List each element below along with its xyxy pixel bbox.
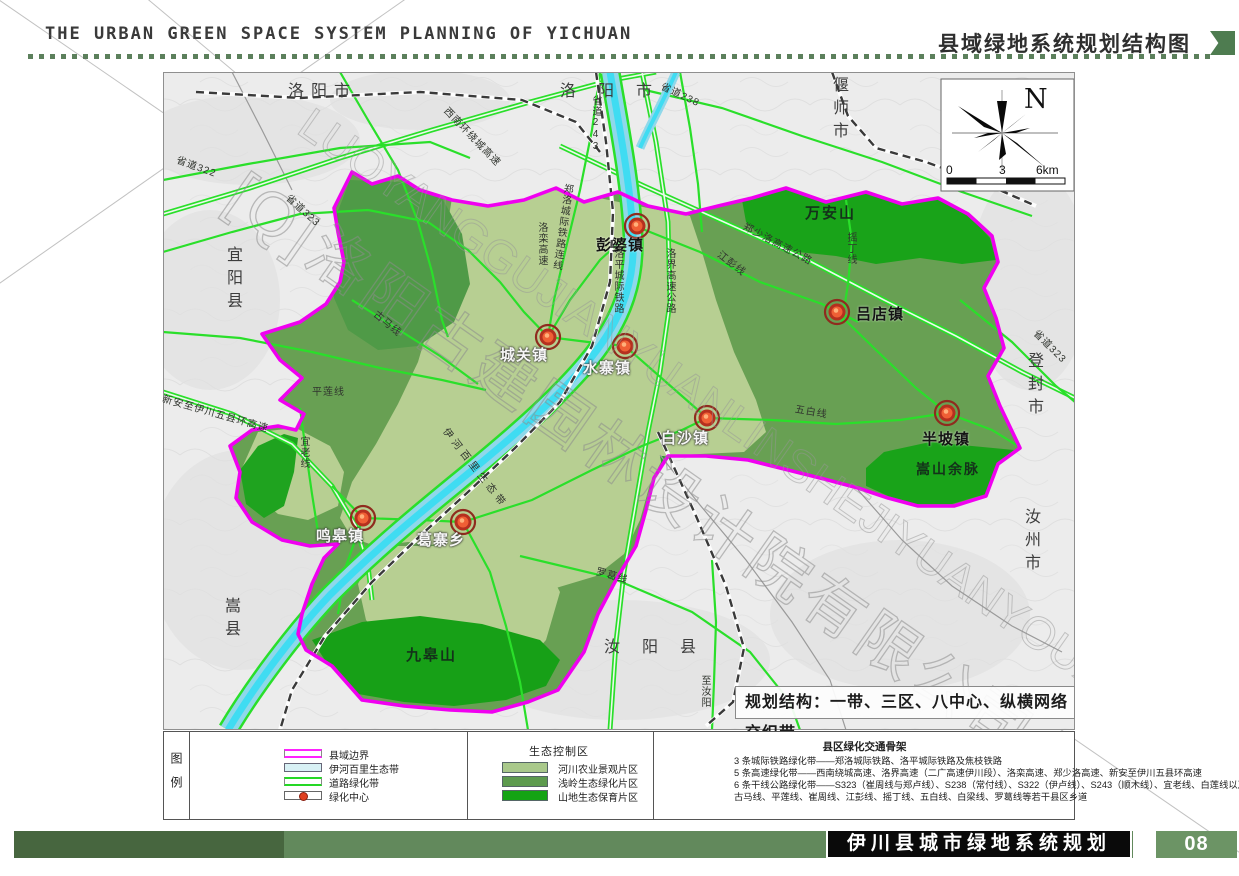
flag-icon: [1203, 31, 1235, 55]
page-title-english: THE URBAN GREEN SPACE SYSTEM PLANNING OF…: [45, 24, 632, 44]
scale-bar: [947, 178, 1065, 184]
legend-eco-label: 河川农业景观片区: [558, 761, 638, 776]
legend-swatch-mountain-conserve: [502, 790, 548, 801]
legend-eco-label: 浅岭生态绿化片区: [558, 775, 638, 790]
planning-structure-note: 规划结构：一带、三区、八中心、纵横网络交织带: [735, 686, 1075, 719]
dotted-divider: [28, 54, 1213, 59]
page: THE URBAN GREEN SPACE SYSTEM PLANNING OF…: [0, 0, 1239, 876]
legend-item-label: 县域边界: [329, 747, 369, 762]
compass-box: N 0 3 6km: [941, 79, 1074, 191]
legend-table: 图例 县域边界 伊河百里生态带 道路绿化带 绿化中心 生态控制区 河川农业景观片…: [163, 731, 1075, 820]
legend-eco-header: 生态控制区: [529, 743, 589, 759]
town-marker-chengguan: [536, 325, 560, 349]
legend-transport-line: 古马线、平莲线、崔周线、江彭线、摇丁线、五白线、白梁线、罗葛线等若干县区乡道: [734, 789, 1239, 803]
legend-swatch-road-green: [284, 777, 322, 786]
town-marker-minggao: [351, 506, 375, 530]
legend-item-label: 伊河百里生态带: [329, 761, 399, 776]
legend-swatch-eco-band: [284, 763, 322, 772]
legend-item-label: 道路绿化带: [329, 775, 379, 790]
legend-swatch-hill-green: [502, 776, 548, 787]
green-center-dot-icon: [299, 792, 308, 801]
town-marker-pengpo: [625, 214, 649, 238]
legend-divider: [189, 732, 190, 819]
legend-swatch-county-boundary: [284, 749, 322, 758]
planning-map: [Q]洛阳古建园林设计院有限公司 LUOYANGGUJIANYUANLINSHE…: [163, 72, 1075, 730]
town-marker-gezhai: [451, 510, 475, 534]
legend-transport-header: 县区绿化交通骨架: [653, 739, 1076, 754]
footer-title: 伊川县城市绿地系统规划: [826, 829, 1132, 859]
town-marker-lvdian: [825, 300, 849, 324]
legend-divider: [467, 732, 468, 819]
legend-item-label: 绿化中心: [329, 789, 369, 804]
legend-swatch-river-agri: [502, 762, 548, 773]
page-number: 08: [1156, 831, 1237, 858]
legend-swatch-green-center: [284, 791, 322, 800]
north-label: N: [1024, 84, 1048, 115]
legend-panel-label: 图例: [164, 732, 189, 819]
scale-tick-0: 0: [946, 163, 953, 177]
legend-eco-label: 山地生态保育片区: [558, 789, 638, 804]
scale-tick-6: 6km: [1036, 163, 1059, 177]
scale-tick-3: 3: [999, 163, 1006, 177]
town-marker-banpo: [935, 401, 959, 425]
